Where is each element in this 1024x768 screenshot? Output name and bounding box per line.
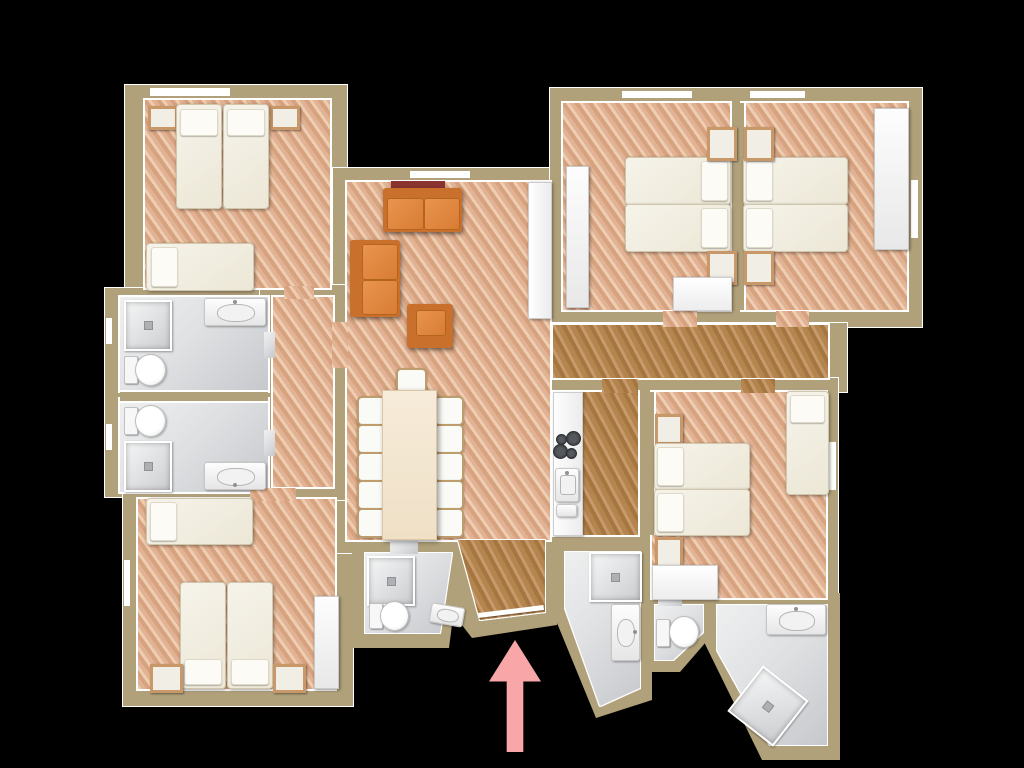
floor-plan-canvas <box>0 0 1024 768</box>
door-opening <box>390 541 418 554</box>
faucet <box>565 471 569 475</box>
chair <box>434 396 464 426</box>
toilet-bowl <box>135 405 166 437</box>
door-opening <box>663 311 697 327</box>
shower-drain <box>611 573 620 582</box>
washbasin <box>611 604 640 661</box>
window <box>911 180 918 238</box>
toilet-bowl <box>380 601 409 631</box>
pillow <box>151 247 178 287</box>
door-opening <box>264 332 275 358</box>
tv-board <box>391 181 445 188</box>
kitchen-sink <box>555 468 579 502</box>
shower-drain <box>144 321 153 330</box>
divider-wall <box>120 390 268 403</box>
cooktop-burner <box>566 431 581 446</box>
shower <box>589 552 642 602</box>
pillow <box>657 493 684 532</box>
cooktop-burner <box>566 448 577 459</box>
faucet <box>794 607 798 611</box>
faucet <box>633 630 637 634</box>
pillow <box>150 502 177 541</box>
nightstand <box>270 106 300 130</box>
nightstand <box>150 664 183 693</box>
wardrobe <box>874 108 909 250</box>
pillow <box>790 395 825 423</box>
chair <box>434 508 464 538</box>
nightstand <box>148 106 178 130</box>
window <box>150 88 230 96</box>
window <box>750 91 805 98</box>
armchair <box>407 304 453 348</box>
door-opening <box>264 430 275 456</box>
window <box>124 560 130 606</box>
pillow <box>657 447 684 486</box>
door-opening <box>741 379 775 393</box>
dining-table <box>382 390 437 540</box>
floor-hallway-west <box>273 297 333 487</box>
door-opening <box>776 311 809 327</box>
door-opening <box>332 322 348 368</box>
window <box>106 318 112 344</box>
shower-drain <box>387 577 396 586</box>
pillow <box>701 208 728 248</box>
shower <box>124 300 172 351</box>
faucet <box>233 300 237 304</box>
pillow <box>231 659 269 685</box>
chair <box>434 424 464 454</box>
nightstand <box>655 414 683 445</box>
window <box>829 442 836 490</box>
sideboard <box>528 182 552 319</box>
window <box>622 91 692 98</box>
pillow <box>227 109 265 136</box>
desk <box>673 277 732 311</box>
entrance-arrow-icon <box>489 640 541 752</box>
pillow <box>701 161 728 201</box>
door-opening <box>284 286 314 299</box>
washbasin <box>766 604 826 635</box>
pillow <box>746 208 773 248</box>
pillow <box>180 109 218 136</box>
door-opening <box>602 379 638 393</box>
shower-drain <box>144 462 153 471</box>
chair <box>434 480 464 510</box>
pillow <box>184 659 222 685</box>
toilet-bowl <box>669 616 699 648</box>
toilet-bowl <box>135 354 166 386</box>
nightstand <box>744 127 774 161</box>
window <box>410 171 470 178</box>
shower <box>124 441 172 492</box>
toilet-tank <box>656 619 670 647</box>
chair <box>434 452 464 482</box>
washbasin <box>204 462 266 490</box>
nightstand <box>707 127 737 161</box>
floor-hallway-east <box>553 325 828 378</box>
desk <box>652 565 718 600</box>
pillow <box>746 161 773 201</box>
wardrobe <box>566 166 589 308</box>
wardrobe <box>314 596 339 689</box>
shower-drain <box>762 700 775 713</box>
nightstand <box>273 664 306 693</box>
faucet <box>233 483 237 487</box>
sofa <box>383 188 462 232</box>
washbasin <box>204 298 266 326</box>
shower <box>367 556 415 606</box>
sofa <box>350 240 400 317</box>
kitchen-drawer <box>556 504 577 517</box>
window <box>106 424 112 450</box>
nightstand <box>744 251 774 285</box>
